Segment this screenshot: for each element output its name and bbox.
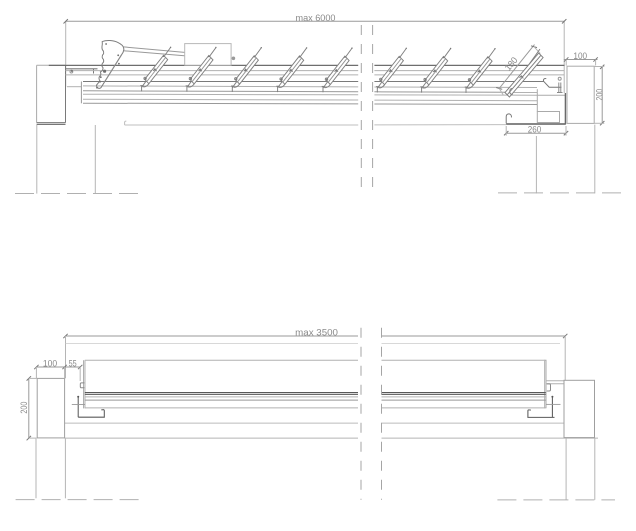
svg-text:200: 200 bbox=[19, 402, 29, 414]
svg-text:max 3500: max 3500 bbox=[295, 327, 338, 337]
svg-text:200: 200 bbox=[595, 89, 605, 101]
svg-text:55: 55 bbox=[69, 359, 77, 369]
svg-text:max 6000: max 6000 bbox=[296, 13, 336, 23]
svg-text:260: 260 bbox=[528, 125, 542, 135]
svg-text:100: 100 bbox=[573, 51, 587, 61]
svg-text:100: 100 bbox=[43, 359, 57, 369]
